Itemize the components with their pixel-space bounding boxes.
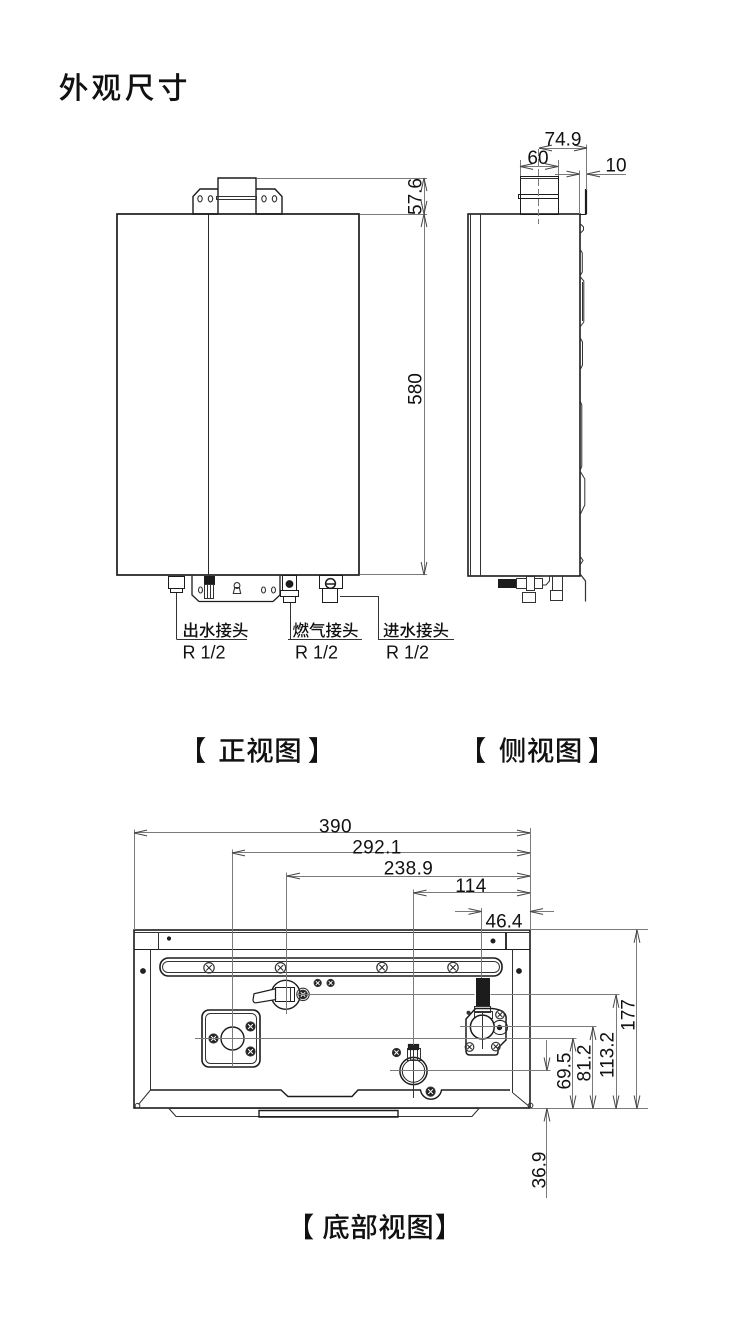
svg-text:10: 10 [605, 156, 626, 177]
svg-text:238.9: 238.9 [384, 859, 434, 880]
svg-text:R 1/2: R 1/2 [386, 643, 429, 663]
svg-text:R 1/2: R 1/2 [183, 643, 226, 663]
svg-text:69.5: 69.5 [555, 1053, 576, 1090]
svg-text:74.9: 74.9 [545, 130, 582, 151]
svg-text:390: 390 [319, 816, 352, 837]
svg-text:580: 580 [406, 373, 427, 405]
svg-text:113.2: 113.2 [598, 1032, 619, 1078]
svg-text:81.2: 81.2 [575, 1045, 596, 1082]
svg-text:36.9: 36.9 [530, 1152, 551, 1189]
svg-text:292.1: 292.1 [352, 838, 402, 859]
svg-text:60: 60 [527, 148, 548, 169]
svg-text:57.6: 57.6 [406, 178, 427, 215]
svg-text:R 1/2: R 1/2 [295, 643, 338, 663]
svg-text:114: 114 [455, 876, 487, 897]
svg-text:177: 177 [619, 999, 640, 1031]
